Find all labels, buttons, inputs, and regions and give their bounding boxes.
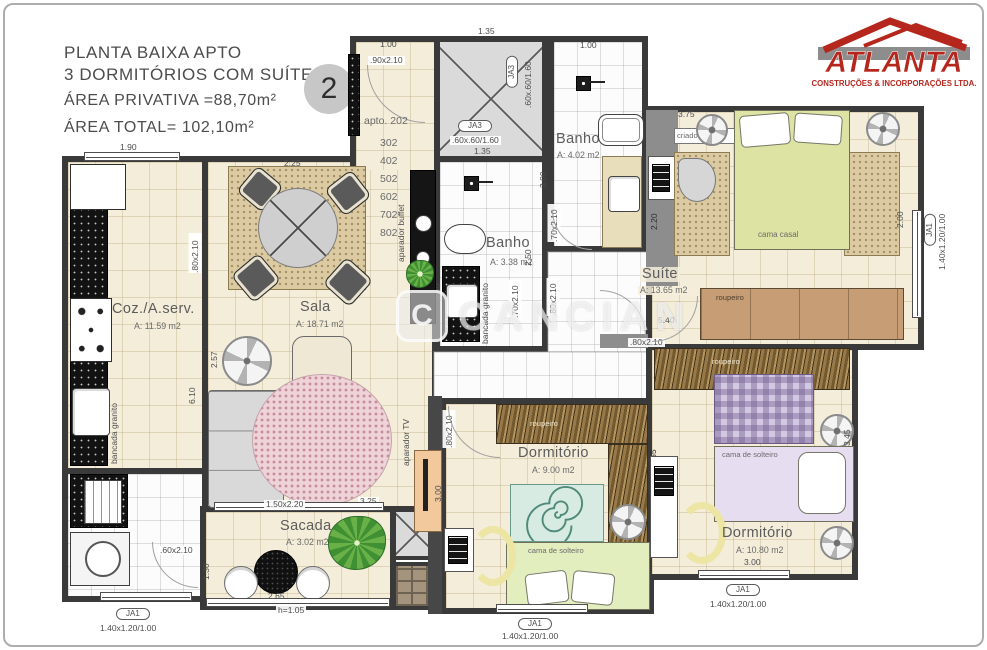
- dim-dorm-middle-left: 3.00: [434, 480, 443, 502]
- shower-arm-suite: [589, 81, 605, 83]
- dim-kitchen-width: 1.90: [120, 143, 137, 152]
- fan-sala: [222, 336, 272, 386]
- area-total-label: ÁREA TOTAL= 102,10m²: [64, 120, 254, 136]
- laundry-tank-icon: [84, 480, 122, 524]
- washing-machine-icon: [70, 532, 130, 586]
- dorm-right-area: A: 10.80 m2: [736, 546, 783, 555]
- sacada-door-size: 1.50x2.20: [264, 500, 305, 509]
- round-rug: [252, 374, 392, 506]
- dim-sacada-depth: 1.30: [202, 558, 211, 580]
- entry-granite-wall: [348, 54, 360, 136]
- dim-suite-right: 2.00: [896, 206, 905, 228]
- atlanta-logo: ATLANTA CONSTRUÇÕES & INCORPORAÇÕES LTDA…: [812, 12, 976, 100]
- sacada-name: Sacada: [280, 519, 332, 534]
- sala-area: A: 18.71 m2: [296, 320, 343, 329]
- kitchen-name: Coz./A.serv.: [112, 302, 195, 317]
- floor-702: 702: [380, 210, 398, 221]
- area-privativa-label: ÁREA PRIVATIVA =88,70m²: [64, 93, 277, 109]
- dim-suite-left: 2.20: [650, 208, 659, 230]
- fan-dorm-right-2: [820, 526, 854, 560]
- suite-desk-rack: [652, 164, 670, 192]
- suite-rug-right: [844, 152, 900, 256]
- suite-area: A: 13.65 m2: [638, 286, 689, 295]
- fan-dorm-middle: [610, 504, 646, 540]
- logo-subtitle-text: CONSTRUÇÕES & INCORPORAÇÕES LTDA.: [812, 79, 976, 88]
- shower-head-icon: [464, 176, 479, 191]
- shower-head-suite-icon: [576, 76, 591, 91]
- dorm-right-window-size: 1.40x1.20/1.00: [710, 600, 766, 609]
- sala-name: Sala: [300, 300, 331, 315]
- dim-shaft-top: 1.35: [478, 27, 495, 36]
- floor-402: 402: [380, 156, 398, 167]
- bathtub-icon: [598, 114, 644, 146]
- washer-drum: [85, 541, 121, 577]
- suite-chair: [678, 158, 716, 202]
- suite-window-tag: JA1: [924, 214, 936, 246]
- kitchen-door-label: .80x2.10: [189, 233, 202, 273]
- tv-stand-label: aparador TV: [402, 408, 411, 466]
- dorm-right-name: Dormitório: [722, 526, 793, 541]
- buffet-plate-1: [415, 215, 432, 232]
- stove-icon: [70, 298, 112, 362]
- dim-suite-top: 3.75: [678, 110, 695, 119]
- floor-302: 302: [380, 138, 398, 149]
- pillow-middle-2: [570, 570, 615, 606]
- dim-dorm-right-side: 3.45: [843, 424, 852, 446]
- dorm-middle-name: Dormitório: [518, 446, 589, 461]
- dorm-middle-chair: [470, 526, 516, 586]
- sacada-area: A: 3.02 m2: [286, 538, 329, 547]
- watermark-text: CANCIAN: [458, 297, 691, 337]
- kitchen-sink-icon: [72, 388, 110, 436]
- apto-line: apto. 202: [364, 116, 408, 127]
- pillow-left: [739, 112, 792, 148]
- floor-plan-page: PLANTA BAIXA APTO 3 DORMITÓRIOS COM SUÍT…: [0, 0, 987, 650]
- dorm-middle-window: [496, 604, 588, 613]
- spiral-rug: [510, 484, 604, 542]
- kitchen-area: A: 11.59 m2: [134, 322, 181, 331]
- laundry-window-size: 1.40x1.20/1.00: [100, 624, 156, 633]
- double-bed-label: cama casal: [758, 231, 798, 239]
- dining-table: [258, 188, 338, 268]
- dim-kitchen-height: 6.10: [188, 378, 197, 404]
- shaft-window-tag-h: JA3: [458, 120, 492, 132]
- dim-dining: 2.25: [284, 159, 301, 168]
- bancada-granito-label: bancada granito: [110, 392, 119, 464]
- guardrail-height-label: h=1.05: [276, 606, 306, 615]
- fan-suite-left: [696, 114, 728, 146]
- dorm-middle-area: A: 9.00 m2: [532, 466, 575, 475]
- dorm-middle-wardrobe-label: roupeiro: [530, 420, 558, 428]
- balcony-chair-2: [296, 566, 330, 600]
- unit-number-badge: 2: [304, 64, 354, 114]
- bath-suite-area: A: 4.02 m2: [557, 151, 600, 160]
- entry-door-label: .90x2.10: [368, 56, 405, 65]
- suite-window: [912, 210, 922, 318]
- suite-wardrobe-label: roupeiro: [716, 294, 744, 302]
- watermark-logo: C: [396, 290, 448, 342]
- plan-title-line2: 3 DORMITÓRIOS COM SUÍTE: [64, 66, 313, 83]
- floor-602: 602: [380, 192, 398, 203]
- laundry-window-tag: JA1: [116, 608, 150, 620]
- spiral-pattern: [511, 485, 603, 541]
- dorm-middle-rack: [448, 536, 468, 564]
- plan-title-line1: PLANTA BAIXA APTO: [64, 44, 242, 61]
- fan-suite-right: [866, 112, 900, 146]
- suite-name: Suíte: [640, 267, 680, 282]
- dorm-right-window-tag: JA1: [726, 584, 760, 596]
- balcony-chair-1: [224, 566, 258, 600]
- laundry-window: [100, 592, 192, 601]
- entry-dim: 1.00: [380, 40, 397, 49]
- dorm-right-chair: [678, 502, 726, 564]
- bath-suite-sink: [608, 176, 640, 212]
- tv-icon: [423, 459, 428, 511]
- floor-502: 502: [380, 174, 398, 185]
- kitchen-window: [84, 152, 180, 161]
- kitchen-cabinet: [70, 164, 126, 210]
- bath-suite-name: Banho: [556, 132, 600, 147]
- laundry-door-label: .60x2.10: [158, 546, 195, 555]
- buffet-label: aparador buffet: [397, 196, 406, 262]
- dim-bath-middle: 2.50: [524, 242, 533, 266]
- shaft-window-tag-v: JA3: [506, 56, 518, 88]
- checkered-rug: [714, 374, 814, 444]
- suite-window-size: 1.40x1.20/1.00: [938, 200, 947, 270]
- dorm-right-rack: [654, 466, 674, 496]
- pillow-right-dorm: [798, 452, 846, 514]
- dim-bath-middle-top: 1.35: [474, 147, 491, 156]
- pillow-right: [793, 112, 843, 145]
- shower-arm: [477, 181, 493, 183]
- dorm-middle-window-size: 1.40x1.20/1.00: [502, 632, 558, 641]
- floor-802: 802: [380, 228, 398, 239]
- toilet-icon-middle: [444, 224, 486, 254]
- dim-bath-suite-height: 3.00: [539, 166, 548, 188]
- dim-sala-left1: 2.57: [210, 344, 219, 368]
- corridor-lower: [434, 352, 652, 404]
- balcony-table: [254, 550, 298, 594]
- dorm-right-wardrobe-label: roupeiro: [712, 358, 740, 366]
- logo-brand-text: ATLANTA: [824, 46, 962, 79]
- dorm-middle-wardrobe-top: [496, 404, 648, 444]
- shaft-window-size-h: .60x.60/1.60: [450, 136, 501, 145]
- single-bed-middle-label: cama de solteiro: [528, 547, 584, 555]
- shaft-window-size-v: .60x.60/1.60: [524, 52, 533, 108]
- dim-dorm-right-bottom: 3.00: [744, 558, 761, 567]
- dorm-right-window: [698, 570, 790, 579]
- dim-bath-suite-top: 1.00: [580, 41, 597, 50]
- single-bed-right-label: cama de solteiro: [722, 451, 778, 459]
- pillow-middle-1: [524, 570, 570, 607]
- dorm-middle-window-tag: JA1: [518, 618, 552, 630]
